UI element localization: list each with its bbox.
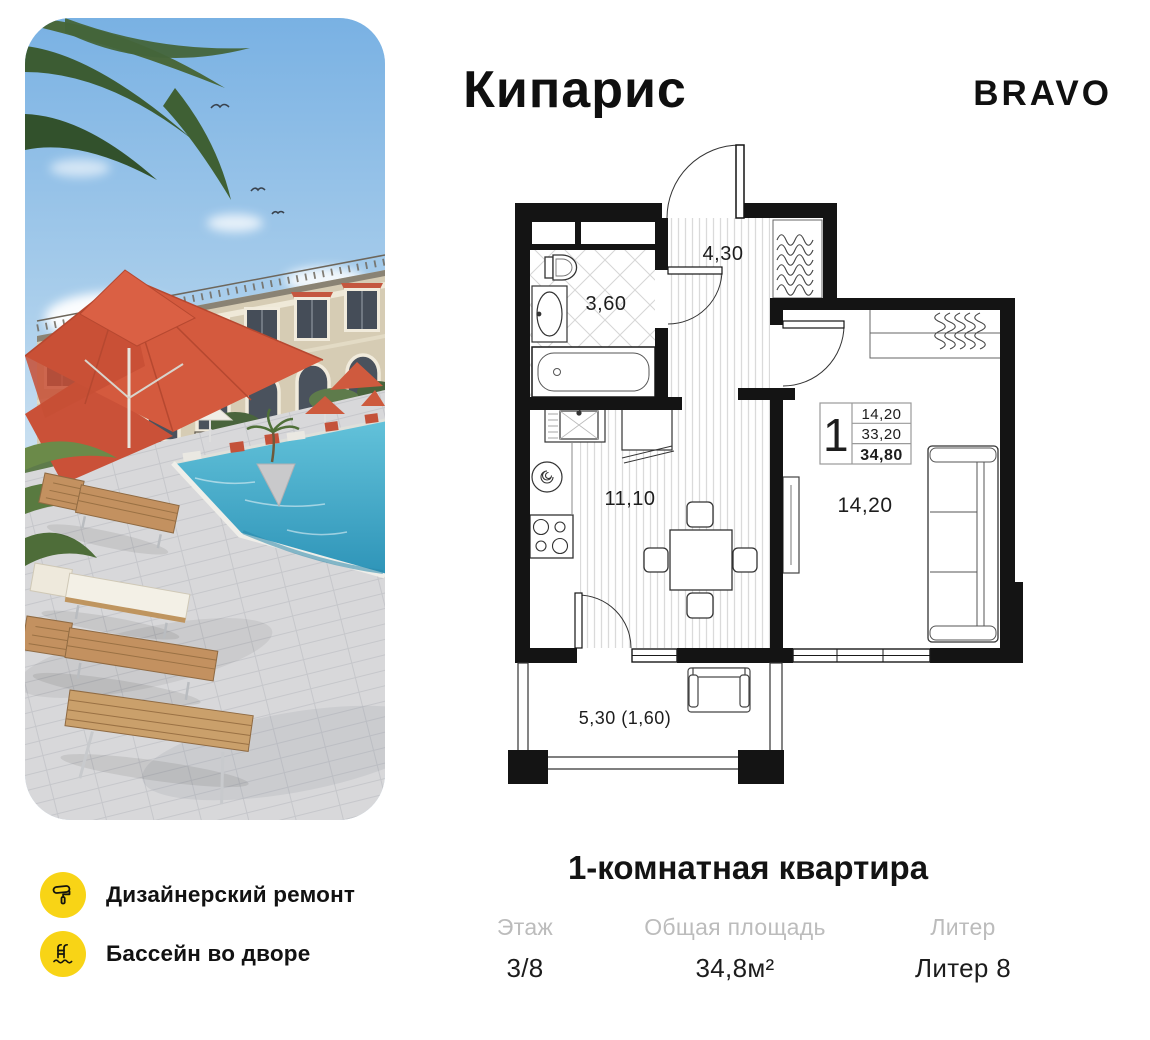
kitchen-sink-icon: [545, 406, 605, 442]
rooms-count: 1: [823, 409, 849, 461]
fridge-icon: [532, 462, 562, 492]
hero-photo: [25, 18, 385, 820]
stat-liter-value: Литер 8: [850, 953, 1076, 984]
stat-total-area: Общая площадь 34,8м²: [625, 914, 845, 984]
kitchen-window-icon: [632, 649, 677, 662]
stat-total-area-label: Общая площадь: [625, 914, 845, 941]
feature-designer-renovation: Дизайнерский ремонт: [40, 872, 355, 918]
paint-roller-icon: [40, 872, 86, 918]
kitchen-area-label: 11,10: [604, 488, 655, 510]
room-furniture: [783, 446, 998, 642]
washbasin-icon: [532, 286, 567, 342]
stat-total-area-value: 34,8м²: [625, 953, 845, 984]
room-area-label: 14,20: [837, 494, 892, 517]
radiator-icon: [783, 477, 799, 573]
sofa-icon: [928, 446, 998, 642]
hallway-closet-icon: [773, 220, 822, 298]
hero-photo-illustration: [25, 18, 385, 820]
stat-liter: Литер Литер 8: [850, 914, 1076, 984]
stat-floor-label: Этаж: [440, 914, 610, 941]
feature-pool-in-yard: Бассейн во дворе: [40, 931, 355, 977]
entrance-door-icon: [667, 145, 744, 218]
room-closet-icon: [870, 310, 1000, 358]
plan-info-box: 1 14,20 33,20 34,80: [820, 403, 911, 464]
room-door-icon: [783, 321, 844, 386]
stat-floor: Этаж 3/8: [440, 914, 610, 984]
stove-icon: [530, 515, 573, 558]
total-area-value: 34,80: [860, 447, 903, 464]
room-window-icon: [793, 649, 930, 662]
bathtub-icon: [532, 347, 655, 397]
brand-logo: BRAVO: [973, 74, 1112, 114]
balcony-armchair-icon: [688, 668, 750, 712]
feature-label: Дизайнерский ремонт: [106, 882, 355, 908]
pool-ladder-icon: [40, 931, 86, 977]
hallway-area-label: 4,30: [703, 243, 744, 265]
stat-floor-value: 3/8: [440, 953, 610, 984]
balcony-area-label: 5,30 (1,60): [579, 708, 672, 728]
living-area-value: 14,20: [861, 406, 901, 423]
listing-card: Кипарис BRAVO: [0, 0, 1150, 1040]
apartment-type-title: 1-комнатная квартира: [478, 849, 1018, 887]
floor-plan: 1 14,20 33,20 34,80 4,30 3,60 11,10 14,2…: [500, 140, 1030, 800]
area-no-balcony-value: 33,20: [861, 426, 901, 443]
project-title: Кипарис: [388, 60, 762, 120]
stat-liter-label: Литер: [850, 914, 1076, 941]
features-list: Дизайнерский ремонт Бассейн во дворе: [40, 872, 355, 990]
feature-label: Бассейн во дворе: [106, 941, 310, 967]
bathroom-area-label: 3,60: [586, 293, 627, 315]
toilet-icon: [545, 255, 577, 280]
